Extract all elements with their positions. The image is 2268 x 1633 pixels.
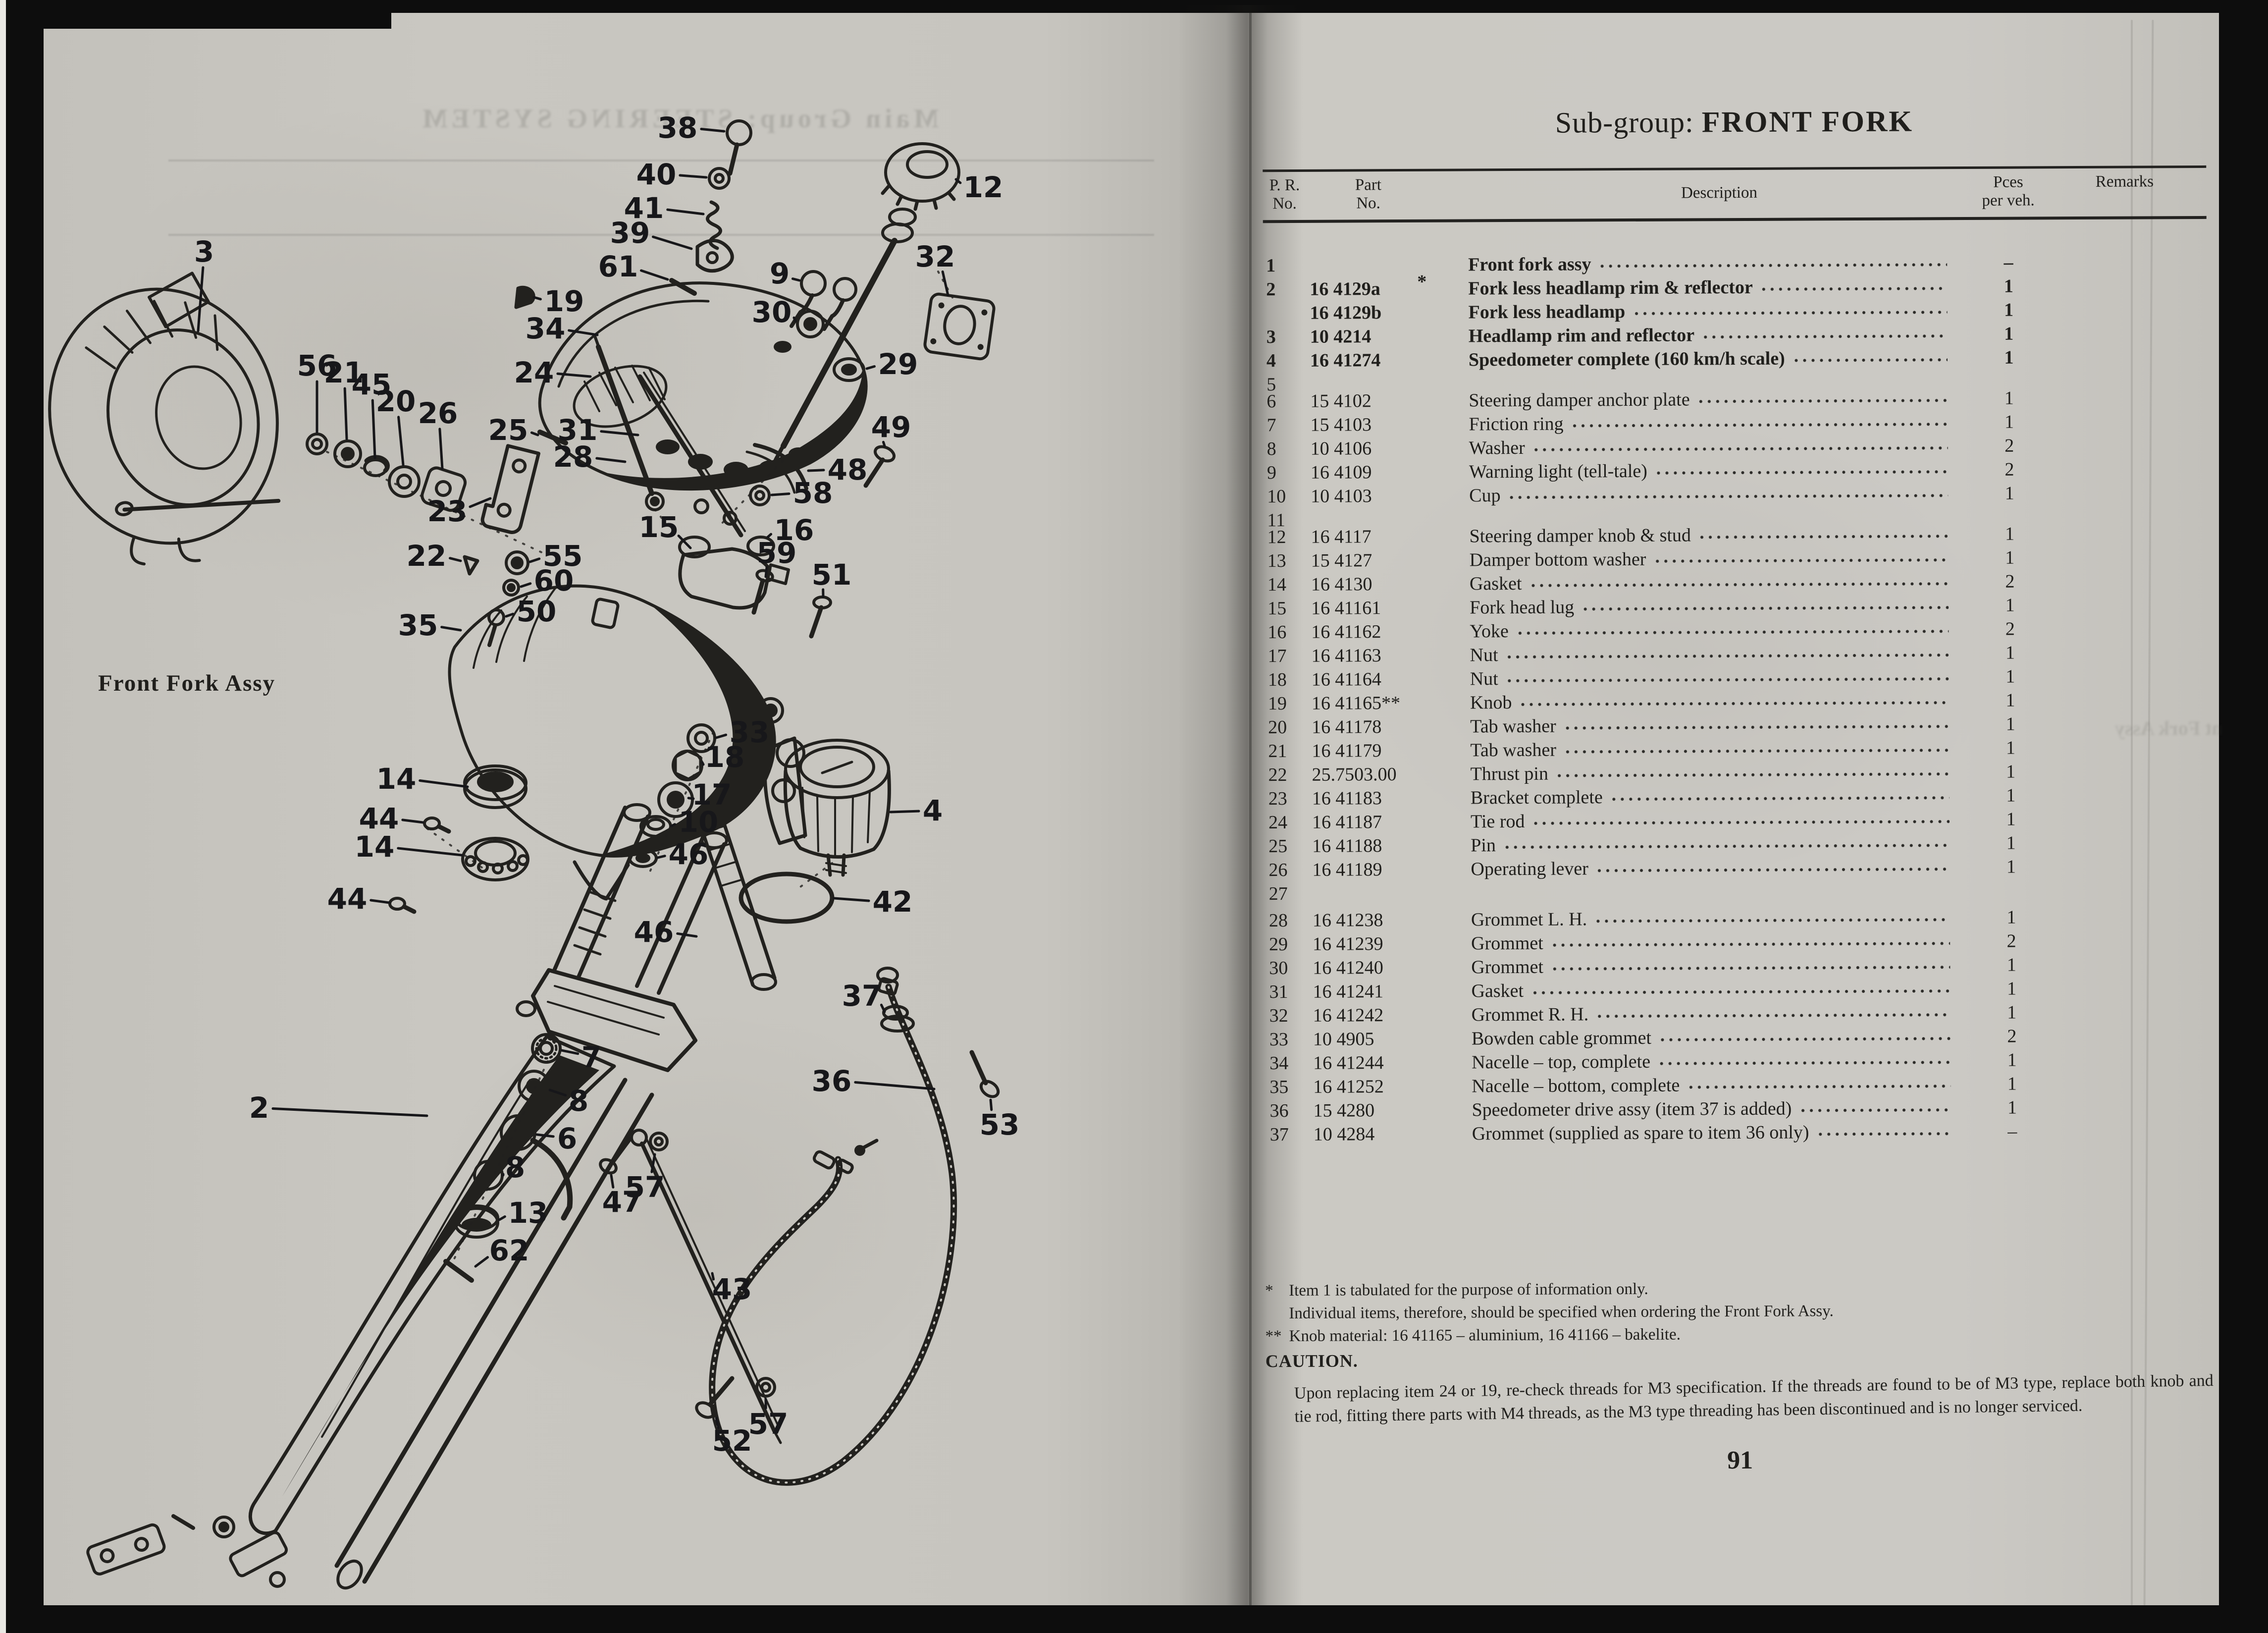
footnote-text: Individual items, therefore, should be s… xyxy=(1289,1300,1834,1325)
page-title: Sub-group: FRONT FORK xyxy=(1263,103,2206,141)
cell-remarks xyxy=(2047,1065,2210,1066)
callout-number: 4 xyxy=(923,794,943,827)
leader-line xyxy=(891,811,919,812)
table-row: 1216 4117Steering damper knob & stud1 xyxy=(1264,522,2208,550)
dot-leader xyxy=(1632,307,1947,319)
dot-leader xyxy=(1555,769,1950,780)
exploded-diagram: 3384041396112930321934242925314956214520… xyxy=(0,0,1218,1633)
cell-remarks xyxy=(2046,848,2209,849)
callout-number: 10 xyxy=(679,805,719,839)
cell-description: Cup xyxy=(1469,483,1975,506)
cell-description: Warning light (tell-tale) xyxy=(1469,459,1975,483)
callout-37: 37 xyxy=(842,979,885,1013)
dot-leader xyxy=(1550,962,1950,974)
callout-number: 23 xyxy=(427,494,468,528)
cell-part-no: 16 41242 xyxy=(1313,1004,1437,1027)
callout-number: 18 xyxy=(705,740,745,774)
cell-pr-no: 28 xyxy=(1266,910,1313,931)
cell-part-no: 16 41163 xyxy=(1311,645,1435,667)
cell-part-no: 15 4127 xyxy=(1311,549,1435,572)
dot-leader xyxy=(1581,602,1949,614)
leader-line xyxy=(772,494,789,495)
cell-pces-per-veh: 1 xyxy=(1976,832,2046,854)
dot-leader xyxy=(1516,626,1949,638)
leader-line xyxy=(680,175,706,177)
cell-pces-per-veh: 2 xyxy=(1977,930,2046,952)
dot-leader xyxy=(1531,816,1950,828)
callout-number: 53 xyxy=(980,1108,1020,1142)
callout-number: 28 xyxy=(553,440,593,474)
callout-number: 3 xyxy=(194,235,214,269)
cell-part-no: 16 41161 xyxy=(1311,597,1435,619)
table-row: 2516 41188Pin1 xyxy=(1266,831,2209,859)
cell-description: Bowden cable grommet xyxy=(1472,1026,1977,1049)
table-row: 615 4102Steering damper anchor plate1 xyxy=(1264,386,2207,414)
cell-part-no: 16 4117 xyxy=(1311,526,1434,548)
callout-9: 9 xyxy=(770,257,799,290)
cell-description: Grommet (supplied as spare to item 36 on… xyxy=(1472,1121,1978,1144)
callout-number: 62 xyxy=(489,1234,529,1267)
cell-part-no: 16 41239 xyxy=(1313,933,1436,955)
leader-line xyxy=(403,820,423,822)
callout-number: 15 xyxy=(639,510,679,544)
dot-leader xyxy=(1505,650,1949,662)
cell-remarks xyxy=(2046,777,2209,777)
leader-line xyxy=(792,279,799,280)
cell-pces-per-veh: – xyxy=(1974,251,2043,273)
diagram-callouts: 3384041396112930321934242925314956214520… xyxy=(194,111,1020,1458)
cell-remarks xyxy=(2044,498,2208,499)
cell-remarks xyxy=(2044,403,2207,404)
table-header: P. R.No. PartNo. Description Pcesper veh… xyxy=(1263,172,2206,213)
cell-pr-no: 13 xyxy=(1265,550,1311,572)
leader-line xyxy=(442,627,461,630)
cell-pr-no: 4 xyxy=(1264,350,1310,372)
cell-pces-per-veh: 1 xyxy=(1976,665,2045,688)
page-number: 91 xyxy=(1268,1444,2212,1477)
cell-pr-no: 8 xyxy=(1264,438,1311,460)
dot-leader xyxy=(1657,1057,1951,1069)
cell-description: Gasket xyxy=(1470,571,1975,595)
callout-number: 43 xyxy=(712,1272,752,1306)
cell-description: Headlamp rim and reflector xyxy=(1469,323,1974,347)
cell-description xyxy=(1471,897,1977,899)
leader-line xyxy=(672,824,675,826)
cell-part-no: 16 41238 xyxy=(1313,909,1436,931)
leader-line xyxy=(399,417,403,465)
cell-part-no: 16 41165** xyxy=(1312,692,1435,714)
leader-line xyxy=(530,559,539,562)
cell-remarks xyxy=(2046,872,2210,872)
callout-number: 29 xyxy=(878,347,918,381)
table-row: 27 xyxy=(1266,879,2210,900)
dot-leader xyxy=(1532,443,1948,455)
footnote-line: **Knob material: 16 41165 – aluminium, 1… xyxy=(1265,1321,2216,1348)
cell-part-no xyxy=(1313,899,1436,900)
cell-pr-no: 22 xyxy=(1266,764,1312,786)
table-row: 2225.7503.00Thrust pin1 xyxy=(1266,760,2209,788)
callout-18: 18 xyxy=(702,740,745,774)
table-row: 1516 41161Fork head lug1 xyxy=(1265,594,2208,621)
cell-part-no: 16 4129a xyxy=(1310,278,1433,300)
subgroup-name: FRONT FORK xyxy=(1702,105,1914,138)
leader-line xyxy=(372,400,375,458)
cell-pr-no: 27 xyxy=(1266,883,1313,905)
callout-number: 46 xyxy=(634,915,674,949)
dot-leader xyxy=(1658,1034,1951,1045)
leader-line xyxy=(881,1005,885,1012)
cell-pr-no: 16 xyxy=(1265,621,1311,643)
cell-pr-no: 26 xyxy=(1266,859,1312,881)
leader-line xyxy=(597,458,625,462)
cell-description: Speedometer complete (160 km/h scale) xyxy=(1469,347,1974,371)
footnote-line: *Item 1 is tabulated for the purpose of … xyxy=(1265,1275,2216,1302)
callout-number: 57 xyxy=(748,1407,789,1441)
header-pces-per-veh: Pcesper veh. xyxy=(1973,173,2043,210)
header-description: Description xyxy=(1465,173,1973,212)
table-row: 2116 41179Tab washer1 xyxy=(1265,736,2209,764)
cell-pr-no: 23 xyxy=(1266,788,1312,810)
callout-number: 7 xyxy=(581,1040,601,1074)
cell-pces-per-veh: 1 xyxy=(1977,1096,2047,1119)
table-row: 416 41274Speedometer complete (160 km/h … xyxy=(1264,346,2207,374)
cell-part-no: 16 41244 xyxy=(1313,1052,1437,1074)
leader-line xyxy=(641,271,668,279)
cell-part-no: 10 4106 xyxy=(1311,437,1434,460)
cell-description: Yoke xyxy=(1470,618,1975,642)
callout-number: 52 xyxy=(712,1424,752,1458)
table-row: 216 4129aFork less headlamp rim & reflec… xyxy=(1263,274,2207,302)
cell-pr-no: 36 xyxy=(1266,1100,1313,1122)
callout-13: 13 xyxy=(499,1196,548,1230)
cell-description: Pin xyxy=(1471,832,1976,856)
callout-12: 12 xyxy=(956,170,1003,204)
cell-pces-per-veh: 1 xyxy=(1976,856,2046,878)
cell-remarks xyxy=(2044,451,2208,451)
cell-remarks xyxy=(2046,970,2210,971)
cell-remarks xyxy=(2045,634,2208,635)
leader-line xyxy=(531,433,538,435)
callout-number: 8 xyxy=(505,1150,525,1184)
table-row: 2816 41238Grommet L. H.1 xyxy=(1266,906,2210,933)
cell-pces-per-veh: 1 xyxy=(1976,737,2045,759)
cell-pces-per-veh: 1 xyxy=(1977,1073,2047,1095)
table-row: 1816 41164Nut1 xyxy=(1265,665,2209,693)
cell-pces-per-veh: 1 xyxy=(1974,411,2044,433)
cell-pr-no: 18 xyxy=(1265,669,1312,691)
callout-number: 58 xyxy=(793,476,833,510)
table-row: 3516 41252Nacelle – bottom, complete1 xyxy=(1266,1072,2210,1100)
right-page: Sub-group: FRONT FORK P. R.No. PartNo. D… xyxy=(1215,0,2268,1633)
callout-14: 14 xyxy=(355,830,462,864)
cell-part-no: 10 4905 xyxy=(1313,1028,1437,1050)
cell-pr-no: 12 xyxy=(1264,526,1311,548)
cell-pr-no: 9 xyxy=(1264,462,1311,484)
cell-part-no: 16 41183 xyxy=(1312,787,1436,810)
dot-leader xyxy=(1595,1010,1951,1021)
parts-table-body: 1*Front fork assy–216 4129aFork less hea… xyxy=(1263,251,2211,1147)
callout-number: 30 xyxy=(752,295,792,329)
callout-number: 44 xyxy=(327,882,368,916)
dot-leader xyxy=(1530,986,1951,998)
cell-part-no: 16 41164 xyxy=(1312,668,1435,691)
cell-remarks xyxy=(2044,363,2207,363)
callout-40: 40 xyxy=(636,158,706,191)
scan-edge-right xyxy=(2223,0,2268,1633)
table-rule-mid xyxy=(1263,216,2207,223)
leader-line xyxy=(521,584,530,587)
table-row: 2616 41189Operating lever1 xyxy=(1266,855,2209,883)
cell-description: Grommet R. H. xyxy=(1472,1002,1977,1026)
leader-line xyxy=(855,1082,934,1089)
cell-pr-no: 21 xyxy=(1265,740,1312,762)
cell-description: Knob xyxy=(1470,690,1976,713)
cell-pr-no: 3 xyxy=(1264,326,1310,348)
table-row: 810 4106Washer2 xyxy=(1264,434,2208,462)
cell-remarks xyxy=(2047,1018,2210,1018)
callout-number: 32 xyxy=(915,240,955,273)
cell-pces-per-veh: – xyxy=(1978,1120,2047,1143)
cell-pr-no: 14 xyxy=(1265,574,1311,596)
cell-description: Fork less headlamp rim & reflector xyxy=(1468,275,1974,299)
callout-43: 43 xyxy=(712,1272,752,1306)
cell-description: Speedometer drive assy (item 37 is added… xyxy=(1472,1097,1977,1121)
footnote-marker: ** xyxy=(1265,1325,1289,1348)
cell-remarks xyxy=(2045,706,2209,706)
cell-description: Friction ring xyxy=(1469,411,1974,435)
cell-description: Fork head lug xyxy=(1470,595,1975,618)
footnote-text: Item 1 is tabulated for the purpose of i… xyxy=(1289,1278,1648,1302)
leader-line xyxy=(273,1109,427,1116)
callout-number: 26 xyxy=(418,396,458,430)
cell-remarks xyxy=(2045,587,2208,587)
leader-line xyxy=(475,1257,488,1266)
table-row: 2916 41239Grommet2 xyxy=(1266,929,2210,957)
cell-part-no: 16 4109 xyxy=(1311,461,1434,484)
cell-pces-per-veh: 1 xyxy=(1976,784,2046,807)
cell-pces-per-veh: 1 xyxy=(1977,1001,2047,1024)
cell-description: Nacelle – top, complete xyxy=(1472,1049,1977,1073)
footnote-marker xyxy=(1265,1302,1289,1325)
callout-52: 52 xyxy=(712,1418,752,1458)
headlamp-art xyxy=(22,261,309,588)
callout-number: 2 xyxy=(249,1091,269,1125)
callout-number: 40 xyxy=(636,158,677,191)
cell-pces-per-veh: 2 xyxy=(1975,435,2044,457)
dot-leader xyxy=(1816,1129,1951,1139)
cell-pr-no: 37 xyxy=(1267,1124,1314,1145)
caution-heading: CAUTION. xyxy=(1266,1350,1358,1371)
leader-line xyxy=(420,781,468,787)
leader-line xyxy=(658,856,665,858)
cell-part-no: 16 41188 xyxy=(1312,835,1436,857)
cell-remarks xyxy=(2043,268,2207,268)
cell-part-no: 15 4102 xyxy=(1310,390,1434,412)
callout-number: 48 xyxy=(828,453,868,487)
cell-remarks xyxy=(2047,1041,2210,1042)
cell-remarks xyxy=(2043,291,2207,292)
table-row: 3216 41242Grommet R. H.1 xyxy=(1266,1001,2210,1029)
dot-leader xyxy=(1508,490,1949,502)
callout-2: 2 xyxy=(249,1091,427,1125)
callout-number: 50 xyxy=(517,595,557,628)
cell-part-no: 16 41274 xyxy=(1310,349,1434,372)
cell-pces-per-veh: 2 xyxy=(1975,618,2045,640)
cell-description: Nut xyxy=(1470,642,1975,666)
cell-pces-per-veh: 1 xyxy=(1976,808,2046,830)
leader-line xyxy=(716,735,726,738)
cell-pces-per-veh: 1 xyxy=(1976,761,2046,783)
table-row: 916 4109Warning light (tell-tale)2 xyxy=(1264,458,2208,486)
cell-remarks xyxy=(2046,946,2210,947)
cell-part-no: 15 4280 xyxy=(1313,1099,1437,1122)
callout-number: 57 xyxy=(625,1170,665,1204)
leader-line xyxy=(834,898,869,901)
cell-description: Nacelle – bottom, complete xyxy=(1472,1073,1977,1097)
cell-pces-per-veh: 1 xyxy=(1977,954,2046,976)
cell-remarks xyxy=(2044,339,2207,339)
footnote-marker: * xyxy=(1265,1279,1289,1302)
cell-pces-per-veh: 1 xyxy=(1975,523,2044,545)
callout-44: 44 xyxy=(327,882,389,916)
callout-22: 22 xyxy=(407,539,461,573)
table-row: 715 4103Friction ring1 xyxy=(1264,410,2207,438)
callout-51: 51 xyxy=(812,558,852,597)
cell-pr-no: 30 xyxy=(1266,957,1313,979)
cell-pr-no: 35 xyxy=(1266,1076,1313,1098)
table-row: 1315 4127Damper bottom washer1 xyxy=(1265,546,2208,574)
table-row: 2316 41183Bracket complete1 xyxy=(1266,784,2209,812)
callout-number: 14 xyxy=(376,762,417,796)
leader-line xyxy=(867,367,874,369)
cell-part-no: 16 41241 xyxy=(1313,980,1436,1003)
callout-32: 32 xyxy=(915,240,955,295)
cell-description: Operating lever xyxy=(1471,856,1976,880)
cell-part-no: 16 4129b xyxy=(1310,302,1433,324)
table-row: 3116 41241Gasket1 xyxy=(1266,977,2210,1005)
cell-pr-no: 33 xyxy=(1266,1029,1313,1050)
callout-35: 35 xyxy=(398,608,461,642)
leader-line xyxy=(440,429,442,469)
dot-leader xyxy=(1505,674,1949,686)
table-row: 3710 4284Grommet (supplied as spare to i… xyxy=(1267,1120,2211,1147)
callout-26: 26 xyxy=(418,396,458,469)
cell-pces-per-veh: 1 xyxy=(1977,906,2046,928)
cell-pces-per-veh xyxy=(1977,896,2046,897)
cell-pces-per-veh: 1 xyxy=(1977,978,2046,1000)
cell-pces-per-veh: 1 xyxy=(1975,546,2045,569)
callout-57: 57 xyxy=(625,1154,665,1204)
cell-pr-no: 2 xyxy=(1263,278,1310,300)
callout-number: 20 xyxy=(376,384,416,418)
callout-53: 53 xyxy=(980,1100,1020,1142)
dot-leader xyxy=(1529,579,1949,591)
scan-edge-bottom xyxy=(0,1605,2268,1633)
cell-description: Grommet xyxy=(1471,954,1977,978)
footnote-line: Individual items, therefore, should be s… xyxy=(1265,1298,2216,1325)
cell-remarks xyxy=(2044,475,2208,475)
dot-leader xyxy=(1792,355,1948,365)
cell-pr-no: 19 xyxy=(1265,693,1312,714)
leader-line xyxy=(678,933,696,936)
leader-line xyxy=(506,614,513,616)
caution-text: Upon replacing item 24 or 19, re-check t… xyxy=(1294,1369,2214,1428)
callout-24: 24 xyxy=(514,356,590,389)
leader-line xyxy=(794,318,795,321)
callout-number: 12 xyxy=(963,170,1003,204)
callout-number: 49 xyxy=(871,410,911,444)
table-row: 1916 41165**Knob1 xyxy=(1265,689,2209,716)
cell-remarks xyxy=(2046,801,2209,801)
cell-pces-per-veh: 1 xyxy=(1974,323,2044,345)
callout-number: 35 xyxy=(398,608,438,642)
dot-leader xyxy=(1697,395,1948,406)
cell-description: Tie rod xyxy=(1471,809,1976,832)
leader-line xyxy=(668,210,703,214)
cell-pces-per-veh: 1 xyxy=(1974,299,2043,321)
scan-edge-left xyxy=(0,0,6,1633)
header-part-no: PartNo. xyxy=(1306,176,1430,213)
callout-36: 36 xyxy=(812,1064,934,1098)
cell-remarks xyxy=(2045,563,2208,563)
cell-remarks xyxy=(2047,1113,2211,1113)
cell-part-no: 16 41178 xyxy=(1312,716,1435,738)
table-row: 2416 41187Tie rod1 xyxy=(1266,808,2209,835)
callout-number: 59 xyxy=(757,536,797,570)
leader-line xyxy=(499,1217,505,1220)
cell-remarks xyxy=(2046,923,2210,923)
cell-part-no: 16 41240 xyxy=(1313,957,1436,979)
leader-line xyxy=(943,272,948,295)
cell-description: Damper bottom washer xyxy=(1470,547,1975,571)
cell-part-no: 16 41189 xyxy=(1312,859,1436,881)
footnotes: *Item 1 is tabulated for the purpose of … xyxy=(1265,1275,2216,1348)
cell-description: Nut xyxy=(1470,666,1976,690)
cell-description: Grommet xyxy=(1471,930,1977,954)
callout-29: 29 xyxy=(867,347,918,381)
cell-remarks xyxy=(2046,896,2210,896)
dot-leader xyxy=(1654,467,1948,478)
cell-pces-per-veh: 1 xyxy=(1976,689,2045,711)
cell-pr-no: 32 xyxy=(1266,1005,1313,1027)
cell-description: Steering damper anchor plate xyxy=(1469,387,1974,411)
cell-pr-no: 20 xyxy=(1265,716,1312,738)
cell-remarks xyxy=(2047,994,2210,994)
cell-description: Tab washer xyxy=(1470,713,1976,737)
cell-part-no: 16 41179 xyxy=(1312,740,1435,762)
cell-description: Thrust pin xyxy=(1471,761,1976,785)
dot-leader xyxy=(1594,915,1950,926)
cell-part-no: 10 4214 xyxy=(1310,326,1434,348)
cell-pr-no: 7 xyxy=(1264,414,1310,436)
cell-description: Washer xyxy=(1469,435,1975,459)
dot-leader xyxy=(1701,331,1948,342)
callout-number: 24 xyxy=(514,356,554,389)
cell-pces-per-veh: 2 xyxy=(1975,570,2045,593)
header-remarks: Remarks xyxy=(2043,172,2206,210)
cell-remarks xyxy=(2044,427,2208,428)
callout-number: 51 xyxy=(812,558,852,592)
leader-line xyxy=(345,388,347,439)
callout-number: 9 xyxy=(770,257,790,290)
cell-remarks xyxy=(2045,753,2209,754)
cell-pces-per-veh: 1 xyxy=(1975,642,2045,664)
cell-pces-per-veh: 1 xyxy=(1977,1049,2047,1071)
cell-remarks xyxy=(2047,1137,2211,1137)
footnote-text: Knob material: 16 41165 – aluminium, 16 … xyxy=(1289,1323,1681,1348)
callout-38: 38 xyxy=(658,111,724,145)
callout-number: 60 xyxy=(534,564,574,598)
